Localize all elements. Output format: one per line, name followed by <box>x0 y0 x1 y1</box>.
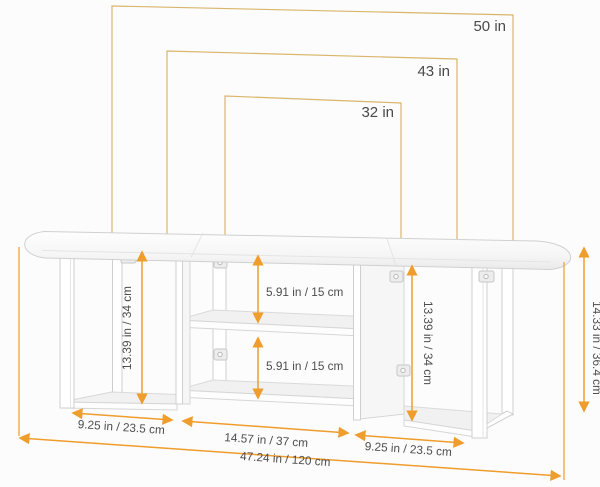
left-divider-panel-side <box>182 250 190 404</box>
dim-label-left-section-width: 9.25 in / 23.5 cm <box>77 417 165 437</box>
tv-stand-illustration <box>25 232 571 439</box>
dim-label-total-height: 14.33 in / 36.4 cm <box>590 301 600 395</box>
bracket-screw-icon <box>401 368 405 372</box>
product-dimension-diagram: 50 in 43 in 32 in <box>0 0 600 487</box>
tv-size-label-32in: 32 in <box>361 104 394 121</box>
bracket-screw-icon <box>484 274 488 278</box>
left-floor-panel-edge <box>62 402 177 410</box>
dim-label-lower-shelf-gap: 5.91 in / 15 cm <box>266 359 344 373</box>
dim-label-middle-section-width: 14.57 in / 37 cm <box>224 430 309 450</box>
dim-label-upper-shelf-gap: 5.91 in / 15 cm <box>266 285 344 299</box>
back-right-leg <box>502 252 513 415</box>
bracket-screw-icon <box>394 274 398 278</box>
tv-outline-43in <box>167 51 457 244</box>
tv-size-label-50in: 50 in <box>473 18 506 35</box>
diagram-canvas: 50 in 43 in 32 in <box>0 0 600 487</box>
left-divider-panel <box>176 251 183 404</box>
tv-size-label-43in: 43 in <box>417 63 450 80</box>
bracket-screw-icon <box>218 352 222 356</box>
dim-line-middle-section-width <box>183 421 348 433</box>
stand-top-panel <box>25 232 571 270</box>
front-left-leg <box>60 251 74 408</box>
tv-size-outlines: 50 in 43 in 32 in <box>112 6 513 246</box>
right-divider-panel <box>354 254 361 420</box>
dim-label-total-width: 47.24 in / 120 cm <box>240 449 331 469</box>
dim-label-right-section-width: 9.25 in / 23.5 cm <box>364 439 452 459</box>
front-right-leg <box>472 257 487 438</box>
dim-label-left-inner-height: 13.39 in / 34 cm <box>120 286 134 370</box>
dim-label-right-inner-height: 13.39 in / 34 cm <box>421 301 435 385</box>
tv-outline-50in <box>112 6 513 246</box>
